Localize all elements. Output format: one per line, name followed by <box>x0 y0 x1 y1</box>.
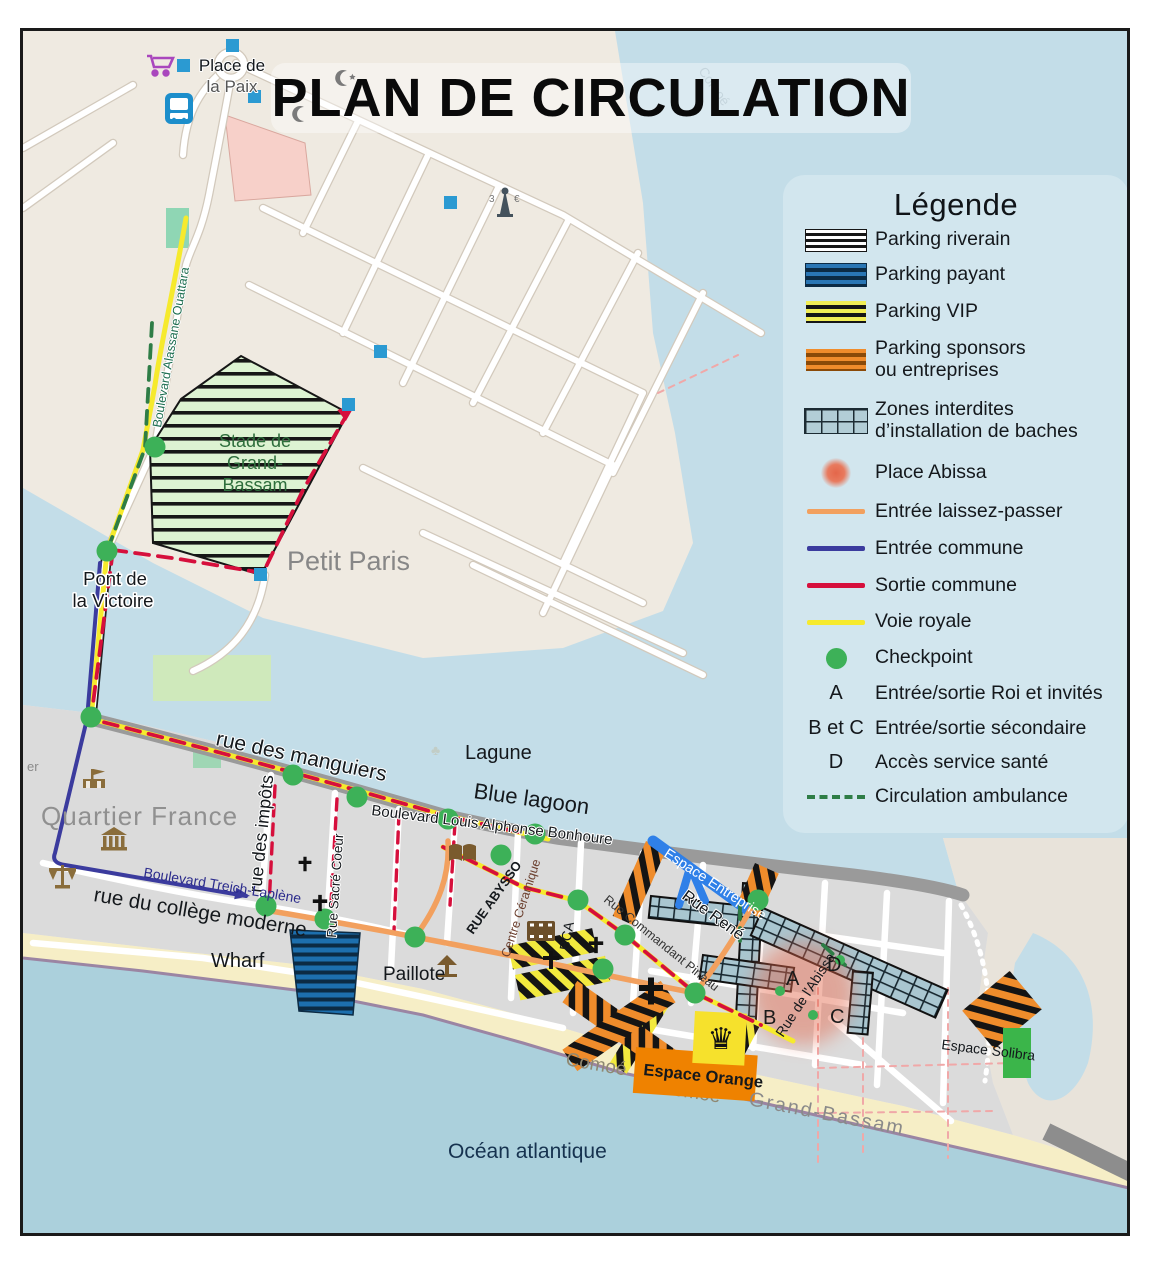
legend-item-parking-sponsors: Parking sponsorsou entreprises <box>783 331 1129 389</box>
page-title: PLAN DE CIRCULATION <box>272 68 911 128</box>
legend-item-voie-royale: Voie royale <box>783 604 1129 640</box>
entree-commune-swatch <box>807 546 865 551</box>
svg-text:€: € <box>514 194 520 205</box>
gate-letter-c: C <box>830 1006 844 1028</box>
label-ocean: Océan atlantique <box>448 1140 607 1163</box>
legend-item-gate-d: D Accès service santé <box>783 746 1129 779</box>
label-wharf: Wharf <box>211 950 265 972</box>
crown-icon: ♛ <box>708 1023 735 1056</box>
legend-item-ambulance: Circulation ambulance <box>783 779 1129 815</box>
legend-item-zones-interdites: Zones interditesd’installation de baches <box>783 389 1129 453</box>
gate-letter-b: B <box>763 1007 776 1029</box>
legend-item-laissez-passer: Entrée laissez-passer <box>783 493 1129 530</box>
legend-item-gate-a: A Entrée/sortie Roi et invités <box>783 676 1129 711</box>
legend-item-gate-bc: B et C Entrée/sortie sécondaire <box>783 711 1129 746</box>
legend-item-checkpoint: Checkpoint <box>783 640 1129 676</box>
legend-item-parking-riverain: Parking riverain <box>783 223 1129 257</box>
label-er: er <box>27 759 39 774</box>
parking-payant-area <box>290 930 360 1015</box>
label-paillote: Paillote <box>383 964 445 985</box>
label-stade: Bassam <box>222 475 287 495</box>
legend-title: Légende <box>783 187 1129 223</box>
label-pont: Pont de <box>83 568 147 589</box>
legend-panel: Légende Parking riverain Parking payant … <box>783 175 1129 833</box>
parking-payant-swatch <box>805 263 867 287</box>
label-pont: la Victoire <box>73 590 154 611</box>
royal-place: ♛ <box>692 1011 747 1066</box>
laissez-passer-swatch <box>807 509 865 514</box>
cinema-icon <box>527 921 555 941</box>
bus-station-icon <box>165 93 193 124</box>
voie-royale-swatch <box>807 620 865 625</box>
gate-letter-a: A <box>786 968 800 990</box>
parking-sponsors-swatch <box>806 349 866 371</box>
label-stade: Grand- <box>227 453 283 473</box>
label-stade: Stade de <box>219 431 291 451</box>
parking-vip-swatch <box>806 301 866 323</box>
map-frame: du Comoé ♛ <box>20 28 1130 1236</box>
ambulance-swatch <box>807 795 865 799</box>
checkpoint-swatch <box>826 648 847 669</box>
legend-item-parking-vip: Parking VIP <box>783 293 1129 331</box>
label-petit-paris: Petit Paris <box>287 546 410 576</box>
parking-riverain-swatch <box>805 229 867 252</box>
label-place-paix: la Paix <box>206 77 258 96</box>
label-lagune: Lagune <box>465 742 532 764</box>
legend-item-entree-commune: Entrée commune <box>783 530 1129 567</box>
title-block: PLAN DE CIRCULATION <box>271 63 911 133</box>
sortie-commune-swatch <box>807 583 865 588</box>
place-abissa-swatch <box>821 458 851 488</box>
legend-item-parking-payant: Parking payant <box>783 257 1129 293</box>
legend-item-place-abissa: Place Abissa <box>783 453 1129 493</box>
label-place-paix: Place de <box>199 56 265 75</box>
svg-text:♣: ♣ <box>431 742 440 758</box>
label-quartier-france: Quartier France <box>41 801 238 831</box>
gate-letter-d: D <box>827 954 841 976</box>
svg-text:3: 3 <box>489 194 495 205</box>
zones-interdites-swatch <box>804 408 868 434</box>
legend-item-sortie-commune: Sortie commune <box>783 567 1129 604</box>
